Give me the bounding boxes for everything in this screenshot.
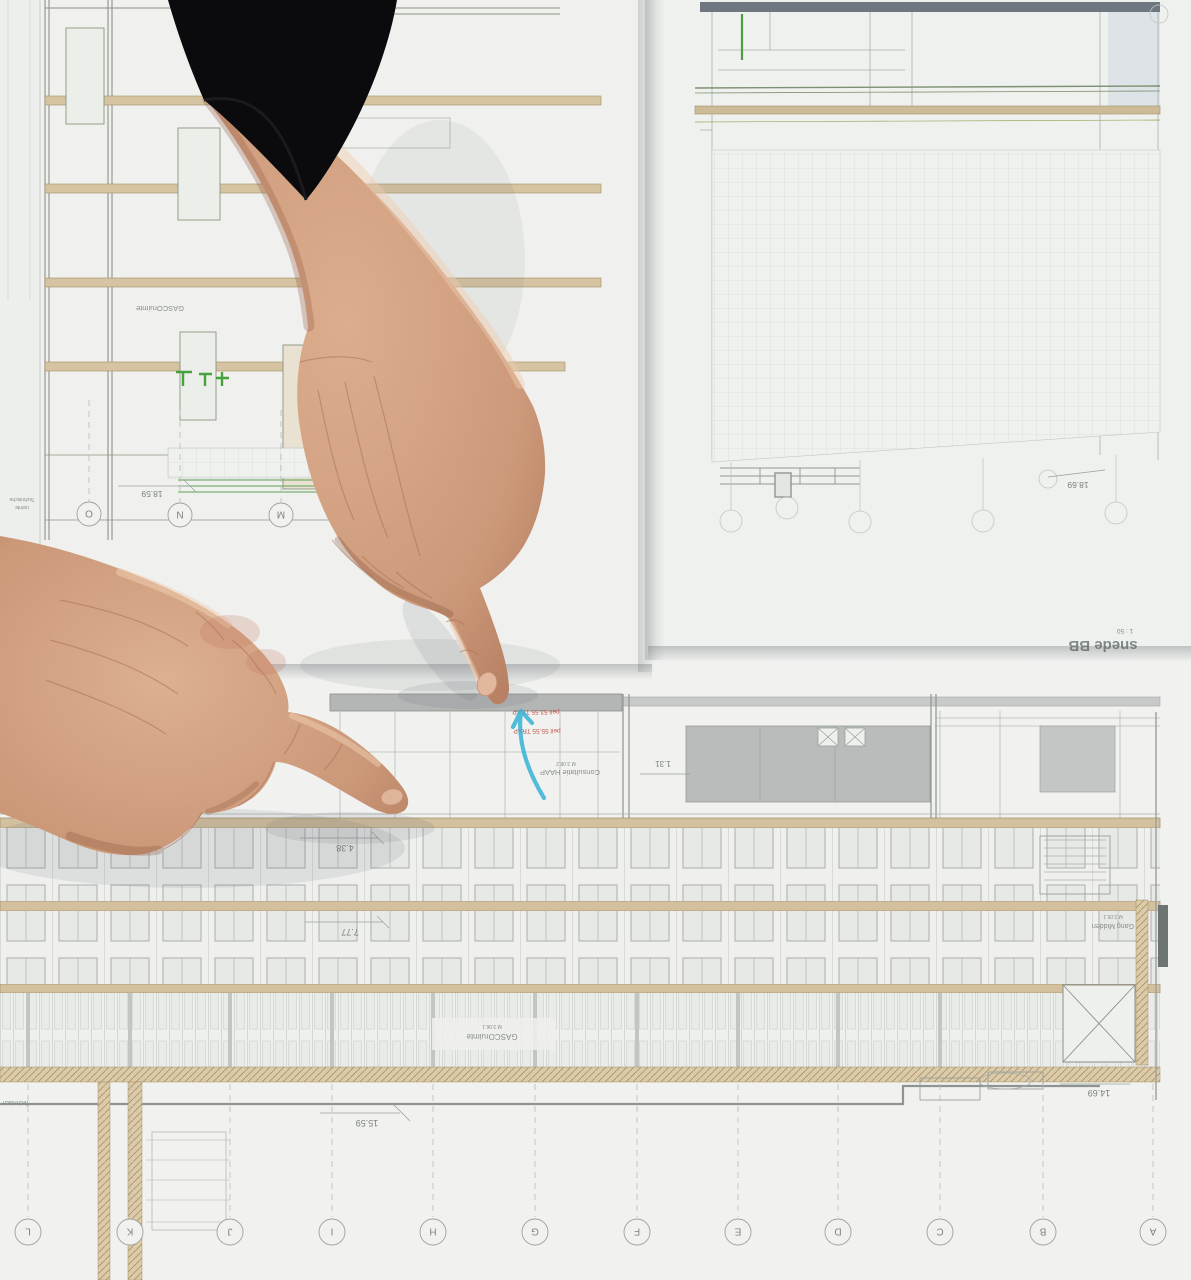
plinth-band: [0, 1067, 1160, 1082]
blueprint-photo-svg: peil 53.55 TRAP peil 55.55 TRAP Consulta…: [0, 0, 1191, 1280]
svg-text:Technisch: Technisch: [3, 1099, 30, 1105]
gasco-label: GASCOruimte: [466, 1032, 518, 1041]
svg-text:D: D: [834, 1226, 841, 1237]
svg-text:1 : 50: 1 : 50: [1116, 627, 1133, 634]
attic-gray-block-2: [1040, 726, 1115, 792]
storey-row-3: [0, 911, 1160, 984]
gasco-code: M 3.06.1: [482, 1023, 502, 1029]
svg-text:O: O: [85, 508, 93, 519]
sheet-plan-edge-shadow: [648, 646, 1191, 662]
svg-text:18.59: 18.59: [141, 489, 163, 499]
sheet-junction-shadow: [638, 0, 656, 672]
svg-text:1.31: 1.31: [655, 759, 671, 768]
photo-hands-on-blueprints: peil 53.55 TRAP peil 55.55 TRAP Consulta…: [0, 0, 1191, 1280]
svg-text:N: N: [176, 509, 183, 520]
svg-text:7.77: 7.77: [341, 927, 359, 937]
svg-text:18.69: 18.69: [1067, 480, 1089, 490]
knuckle-flush-1: [200, 615, 260, 649]
svg-text:B: B: [1039, 1226, 1046, 1237]
glazing-row: [0, 993, 1160, 1067]
svg-text:M 2.05.1: M 2.05.1: [1103, 913, 1123, 919]
svg-text:H: H: [429, 1226, 436, 1237]
svg-text:15.59: 15.59: [356, 1118, 379, 1128]
svg-text:A: A: [1149, 1226, 1156, 1237]
svg-text:C: C: [936, 1226, 943, 1237]
svg-text:K: K: [126, 1226, 133, 1237]
plan-top-band: [700, 2, 1160, 12]
plan-blue-zone: [1108, 12, 1160, 110]
sheet-plan: 18.69 1 : 50 snede BB: [645, 0, 1191, 662]
svg-text:I: I: [331, 1226, 334, 1237]
svg-text:Gang Midden: Gang Midden: [1092, 922, 1134, 929]
svg-text:ruimte: ruimte: [15, 504, 29, 510]
knuckle-flush-2: [246, 649, 286, 675]
plan-grid-field: [712, 150, 1160, 462]
svg-text:Technische: Technische: [9, 496, 34, 502]
left-room-label: GASCOruimte: [136, 304, 184, 313]
svg-text:F: F: [634, 1226, 640, 1237]
svg-text:14.69: 14.69: [1088, 1088, 1111, 1098]
svg-text:J: J: [228, 1226, 233, 1237]
svg-text:Consultatie HAAP: Consultatie HAAP: [540, 768, 600, 777]
roof-band-light: [622, 697, 1160, 706]
svg-text:M: M: [277, 509, 285, 520]
svg-text:M 3.08.2: M 3.08.2: [556, 760, 576, 766]
svg-text:E: E: [734, 1226, 741, 1237]
svg-text:L: L: [25, 1226, 31, 1237]
attic-gray-block: [686, 726, 930, 802]
svg-text:G: G: [531, 1226, 539, 1237]
